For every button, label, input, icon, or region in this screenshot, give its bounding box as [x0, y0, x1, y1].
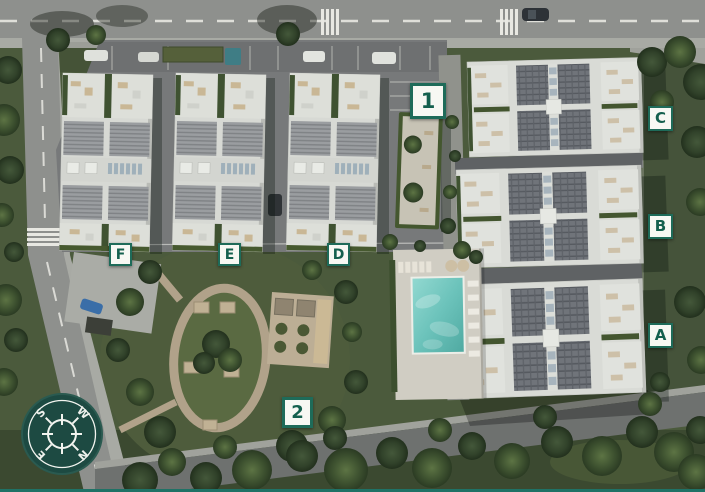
site-plan-render: S W N E [0, 0, 705, 492]
marker-block-f[interactable]: F [109, 243, 132, 266]
marker-area-2[interactable]: 2 [282, 397, 313, 428]
marker-block-e[interactable]: E [218, 243, 241, 266]
building-block-c [467, 57, 643, 157]
marker-block-d[interactable]: D [327, 243, 350, 266]
marker-building-1[interactable]: 1 [410, 83, 446, 119]
building-block-b [456, 165, 644, 268]
building-block-a [459, 279, 646, 399]
swimming-pool [411, 277, 464, 354]
plaza-pergolas [267, 292, 334, 368]
townhouse-block-f [59, 73, 153, 252]
building-1-rooftop [395, 112, 443, 229]
car-on-road [522, 8, 549, 21]
marker-block-a[interactable]: A [648, 323, 673, 348]
pool-area [389, 248, 487, 400]
site-plan-aerial-view: S W N E 1 2 C B A F E D [0, 0, 705, 492]
townhouse-block-e [172, 73, 266, 252]
compass-rose: S W N E [22, 394, 102, 474]
marker-block-c[interactable]: C [648, 106, 673, 131]
townhouse-block-d [286, 73, 380, 252]
marker-block-b[interactable]: B [648, 214, 673, 239]
